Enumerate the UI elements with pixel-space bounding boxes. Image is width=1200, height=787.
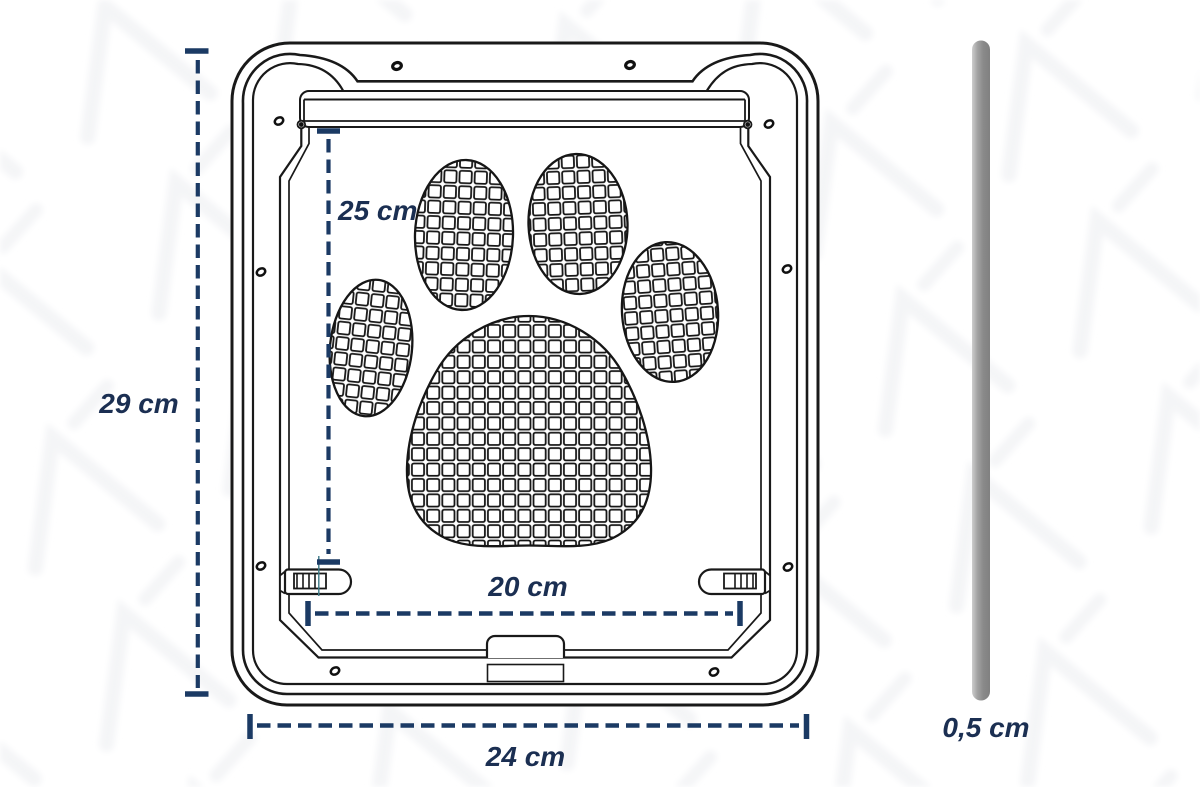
svg-text:20 cm: 20 cm [487, 571, 567, 602]
svg-text:24 cm: 24 cm [485, 741, 565, 772]
svg-text:25 cm: 25 cm [337, 195, 417, 226]
svg-text:29 cm: 29 cm [98, 388, 178, 419]
svg-text:0,5 cm: 0,5 cm [942, 712, 1029, 743]
